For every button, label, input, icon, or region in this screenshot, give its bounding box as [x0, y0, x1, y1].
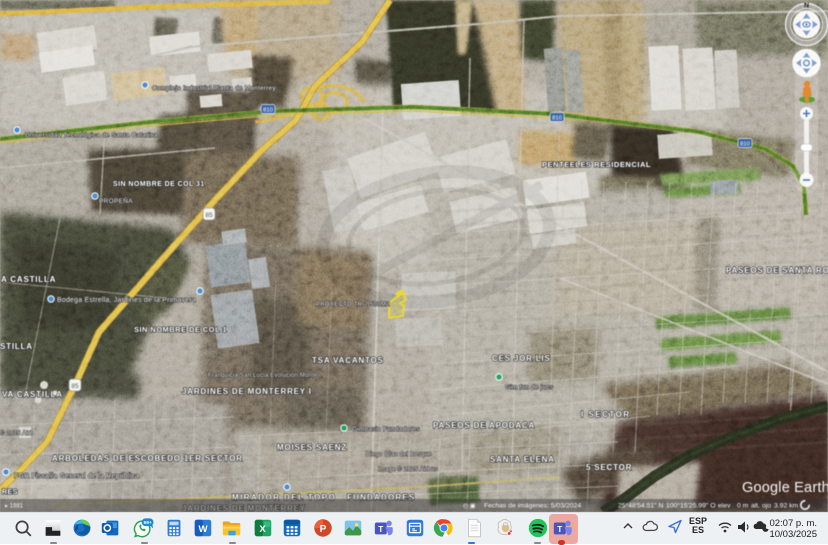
- svg-text:JARDINES DE MONTERREY I: JARDINES DE MONTERREY I: [182, 387, 312, 396]
- svg-text:◴ ▣: ◴ ▣: [463, 504, 476, 510]
- svg-text:Bodega Estrella, Jardines de l: Bodega Estrella, Jardines de la Primaver…: [57, 297, 196, 304]
- svg-text:PENTEELES RESIDENCIAL: PENTEELES RESIDENCIAL: [542, 160, 651, 169]
- svg-text:RES: RES: [2, 489, 18, 496]
- svg-text:5 SECTOR: 5 SECTOR: [586, 463, 632, 472]
- svg-text:SANTA ELENA: SANTA ELENA: [490, 455, 555, 464]
- svg-text:alt. ojo: alt. ojo: [751, 503, 771, 510]
- svg-text:P: P: [320, 524, 327, 535]
- svg-text:0 m: 0 m: [737, 503, 749, 510]
- svg-text:810: 810: [263, 107, 273, 113]
- svg-text:PROPEÑA: PROPEÑA: [99, 196, 133, 205]
- svg-text:VA CASTILLA: VA CASTILLA: [2, 390, 63, 399]
- svg-text:Complejo Industrial Planta de: Complejo Industrial Planta de Monterrey: [152, 85, 276, 92]
- svg-text:© 2025 Airb: © 2025 Airb: [0, 430, 34, 437]
- svg-text:N: N: [804, 3, 809, 10]
- svg-text:3.92 km: 3.92 km: [774, 503, 799, 510]
- svg-text:Gimnasio Fundadores: Gimnasio Fundadores: [352, 426, 420, 433]
- svg-text:TSA VACANTOS: TSA VACANTOS: [312, 356, 384, 365]
- svg-text:810: 810: [552, 115, 562, 121]
- svg-text:100°15'25.99" O: 100°15'25.99" O: [666, 502, 716, 510]
- svg-text:FGR Fiscalía General de la Rep: FGR Fiscalía General de la República: [14, 473, 139, 480]
- svg-text:MOISES SAENZ: MOISES SAENZ: [277, 443, 347, 452]
- svg-text:CES JOR LIS: CES JOR LIS: [492, 354, 551, 363]
- svg-text:SIN NOMBRE DE COL 31: SIN NOMBRE DE COL 31: [113, 181, 205, 188]
- svg-text:Universidad Tecnológica de San: Universidad Tecnológica de Santa Catarin…: [25, 132, 158, 139]
- svg-text:I SECTOR: I SECTOR: [581, 410, 631, 419]
- svg-text:▸ 1981: ▸ 1981: [5, 504, 24, 510]
- svg-text:25°48'54.51" N: 25°48'54.51" N: [618, 502, 663, 510]
- svg-text:Fechas de imágenes: 5/03/2024: Fechas de imágenes: 5/03/2024: [484, 503, 581, 510]
- svg-text:elev: elev: [718, 503, 731, 510]
- svg-text:85: 85: [71, 383, 79, 390]
- svg-text:A CASTILLA: A CASTILLA: [1, 275, 56, 284]
- svg-text:ARBOLEDAS DE ESCOBEDO 1ER SECT: ARBOLEDAS DE ESCOBEDO 1ER SECTOR: [52, 454, 243, 463]
- svg-text:T: T: [378, 525, 383, 534]
- svg-text:STILLA: STILLA: [0, 342, 33, 351]
- svg-text:Image © 2025 Airbus: Image © 2025 Airbus: [378, 466, 438, 473]
- svg-text:99+: 99+: [144, 520, 152, 526]
- svg-text:Gim fun de jucs: Gim fun de jucs: [505, 384, 554, 391]
- svg-text:W: W: [198, 524, 208, 535]
- svg-text:X: X: [259, 524, 266, 535]
- svg-text:PASEOS DE SANTA ROSA: PASEOS DE SANTA ROSA: [726, 266, 828, 275]
- svg-text:PROYECTO TR 2 500M2: PROYECTO TR 2 500M2: [316, 302, 390, 308]
- svg-text:PASEOS DE APODACA: PASEOS DE APODACA: [433, 421, 535, 430]
- svg-text:85: 85: [205, 212, 213, 219]
- svg-text:Franquicia San Lucia Evolución: Franquicia San Lucia Evolución Monte: [208, 373, 318, 379]
- svg-text:SIN NOMBRE DE COL 1: SIN NOMBRE DE COL 1: [134, 325, 227, 334]
- svg-text:Google Earth: Google Earth: [742, 480, 828, 496]
- svg-text:810: 810: [740, 141, 750, 147]
- svg-text:T: T: [557, 525, 562, 534]
- svg-text:Diego Díaz del Bosque: Diego Díaz del Bosque: [366, 452, 432, 458]
